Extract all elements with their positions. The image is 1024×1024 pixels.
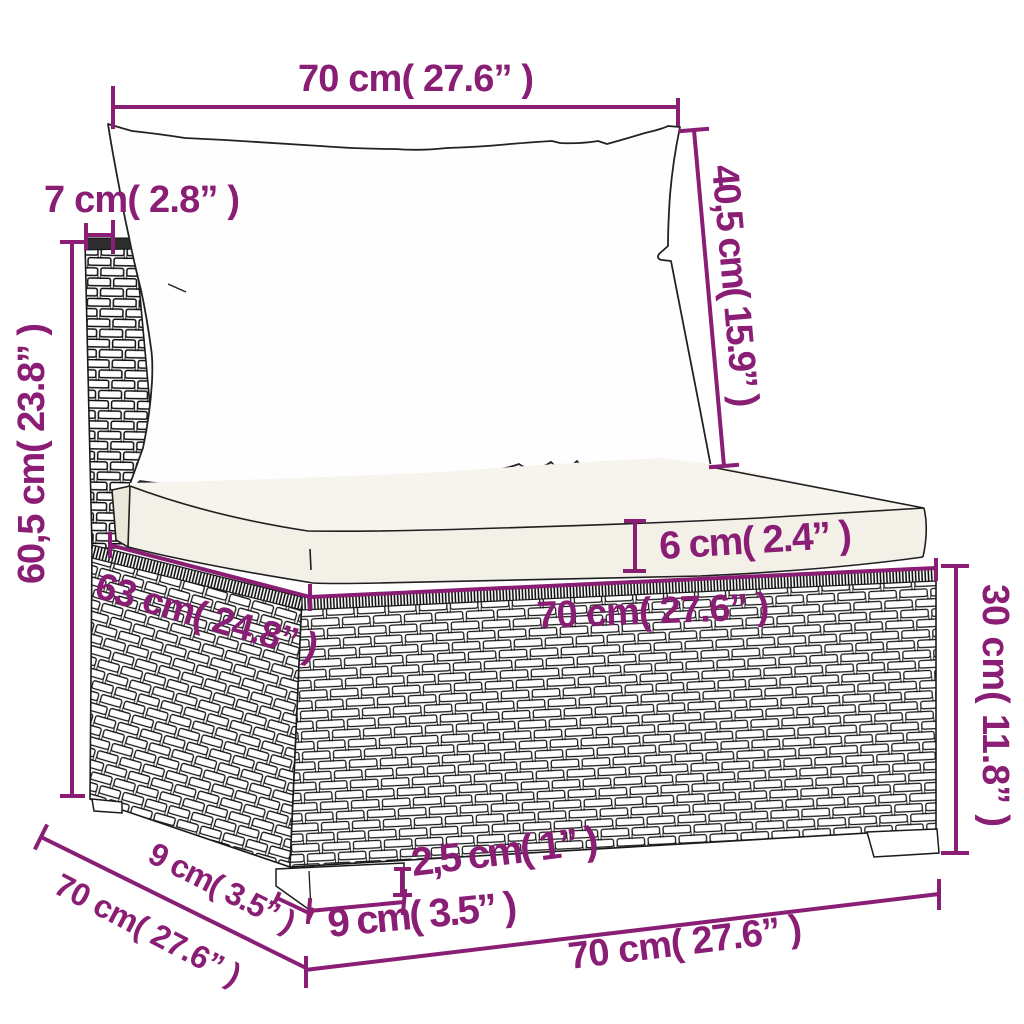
svg-text:30 cm( 11.8” ): 30 cm( 11.8” ) xyxy=(974,584,1016,827)
svg-text:70 cm( 27.6” ): 70 cm( 27.6” ) xyxy=(298,58,534,100)
svg-text:60,5 cm( 23.8” ): 60,5 cm( 23.8” ) xyxy=(11,323,53,584)
svg-text:7 cm( 2.8” ): 7 cm( 2.8” ) xyxy=(44,179,240,221)
svg-text:70 cm( 27.6” ): 70 cm( 27.6” ) xyxy=(536,586,770,637)
